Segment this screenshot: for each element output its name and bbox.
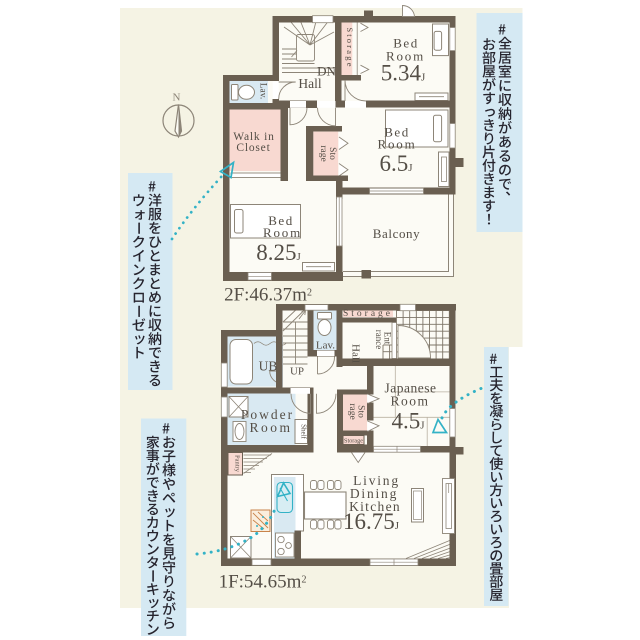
svg-text:Room: Room — [249, 420, 292, 435]
svg-text:rage: rage — [347, 403, 357, 419]
svg-text:16.75J: 16.75J — [343, 509, 400, 534]
svg-text:Room: Room — [378, 137, 417, 152]
svg-text:Storage: Storage — [343, 309, 393, 319]
svg-text:Room: Room — [263, 225, 302, 240]
svg-text:5.34J: 5.34J — [381, 61, 426, 86]
svg-text:Room: Room — [390, 394, 429, 409]
svg-text:Shelf: Shelf — [300, 424, 308, 439]
svg-text:2F:46.37m2: 2F:46.37m2 — [224, 285, 312, 306]
svg-text:1F:54.65m2: 1F:54.65m2 — [219, 572, 307, 593]
svg-text:Pantry: Pantry — [233, 455, 240, 473]
svg-text:Hall: Hall — [298, 76, 321, 91]
svg-text:N: N — [173, 92, 181, 104]
svg-text:8.25J: 8.25J — [256, 240, 301, 265]
svg-text:UB: UB — [259, 359, 278, 374]
svg-text:Storage: Storage — [345, 27, 355, 68]
svg-text:rance: rance — [374, 330, 384, 349]
svg-text:6.5J: 6.5J — [379, 151, 413, 176]
svg-text:Balcony: Balcony — [373, 226, 421, 241]
svg-text:Hall: Hall — [350, 344, 362, 363]
svg-text:Storage: Storage — [344, 437, 363, 444]
svg-text:Lav.: Lav. — [258, 83, 268, 100]
svg-text:Lav.: Lav. — [316, 339, 335, 351]
svg-text:Closet: Closet — [236, 142, 270, 154]
svg-text:rage: rage — [318, 145, 328, 161]
svg-text:UP: UP — [290, 366, 304, 378]
svg-text:4.5J: 4.5J — [391, 409, 425, 434]
